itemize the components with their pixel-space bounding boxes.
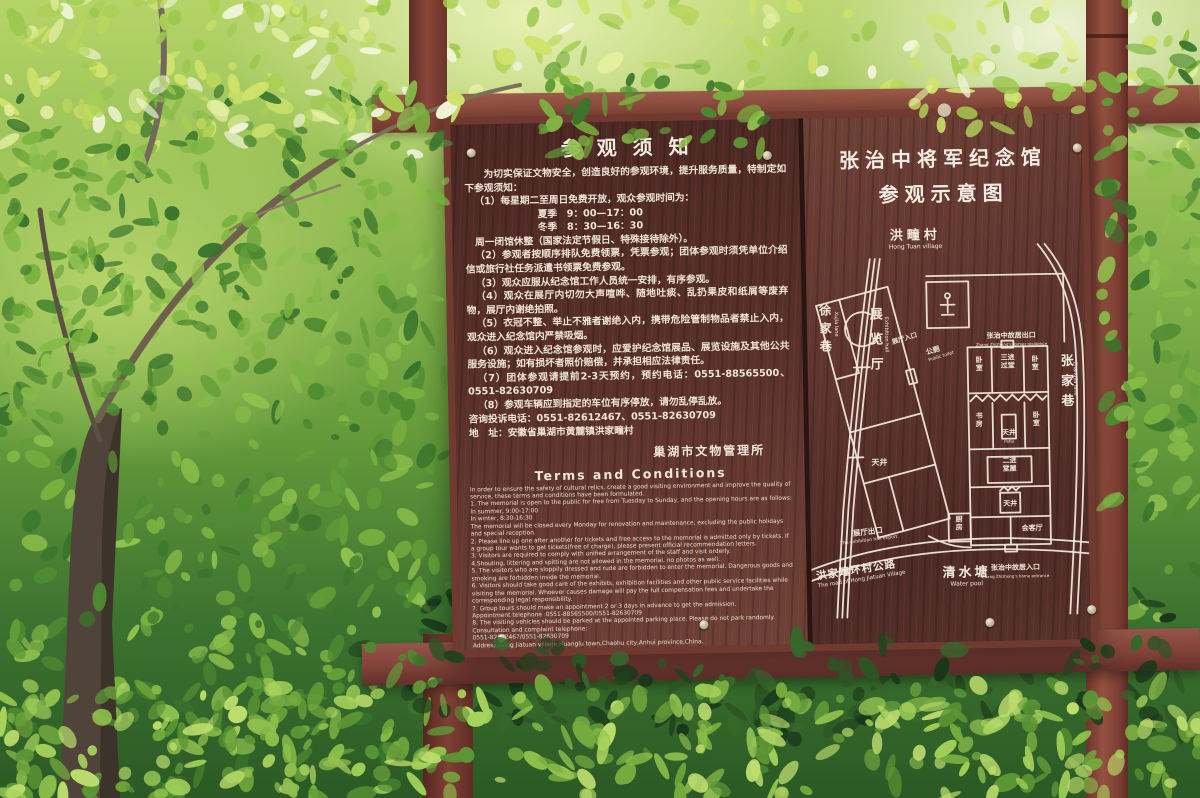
map-room-bedroom: 卧室 <box>976 357 985 373</box>
map-room-bedroom: 卧室 <box>1033 412 1042 428</box>
map-label-residence-entrance: 张治中故居入口 Zhang Zhizhong's home entrance <box>965 554 1065 580</box>
notice-panel: 参观须知 为切实保证文物安全，创造良好的参观环境，提升服务质量，特制定如下参观须… <box>450 118 808 650</box>
terms-body: In order to ensure the safety of cultura… <box>470 481 795 651</box>
map-room-second-hall: 二进堂屋 <box>1001 457 1017 473</box>
map-title-line2: 参观示意图 <box>804 174 1083 214</box>
map-label-residence-exit: 张治中故居出口 Zhang Zhizhong's former residenc… <box>963 322 1059 348</box>
notice-title: 参观须知 <box>463 129 785 164</box>
screw-icon <box>1087 605 1096 614</box>
site-map: 洪疃村 Hong Tuan village 徐家巷 Xujia lane 张家巷… <box>805 215 1091 620</box>
screw-icon <box>985 618 994 627</box>
map-room-patio-hall: 天井 <box>871 457 887 468</box>
map-label-village: 洪疃村 Hong Tuan village <box>860 223 970 251</box>
monument-icon <box>940 293 954 315</box>
notice-signboard: 参观须知 为切实保证文物安全，创造良好的参观环境，提升服务质量，特制定如下参观须… <box>443 106 1098 658</box>
map-panel: 张治中将军纪念馆 参观示意图 <box>803 113 1091 644</box>
map-room-third-hall: 三进过堂 <box>1000 355 1016 371</box>
notice-body: 为切实保证文物安全，创造良好的参观环境，提升服务质量，特制定如下参观须知： （1… <box>464 163 790 413</box>
map-room-study: 书房 <box>976 413 985 429</box>
map-label-xujia-lane-en: Xujia lane <box>833 312 839 337</box>
screw-icon <box>1073 143 1082 152</box>
map-label-zhangjia-lane-en: Zhangjia lane <box>1072 361 1079 395</box>
map-title-line1: 张治中将军纪念馆 <box>804 139 1083 179</box>
map-label-exhibition-hall-en: Exhibition hall <box>883 317 890 353</box>
map-room-bedroom: 卧室 <box>1032 356 1041 372</box>
map-room-reception: 会客厅 <box>1022 523 1043 533</box>
toilet-building <box>926 281 969 328</box>
screw-icon <box>763 151 772 160</box>
outdoor-scene: 参观须知 为切实保证文物安全，创造良好的参观环境，提升服务质量，特制定如下参观须… <box>0 0 1200 798</box>
map-room-kitchen: 厨房 <box>955 516 964 532</box>
map-title: 张治中将军纪念馆 参观示意图 <box>803 113 1083 214</box>
terms-title: Terms and Conditions <box>470 463 792 484</box>
notice-signature: 巢湖市文物管理所 <box>469 440 791 463</box>
map-room-patio: 天井 <box>1003 498 1017 508</box>
map-room-patio: 天井 Patio <box>999 419 1019 443</box>
frame-left-post-top <box>409 0 447 132</box>
screw-icon <box>467 148 476 157</box>
